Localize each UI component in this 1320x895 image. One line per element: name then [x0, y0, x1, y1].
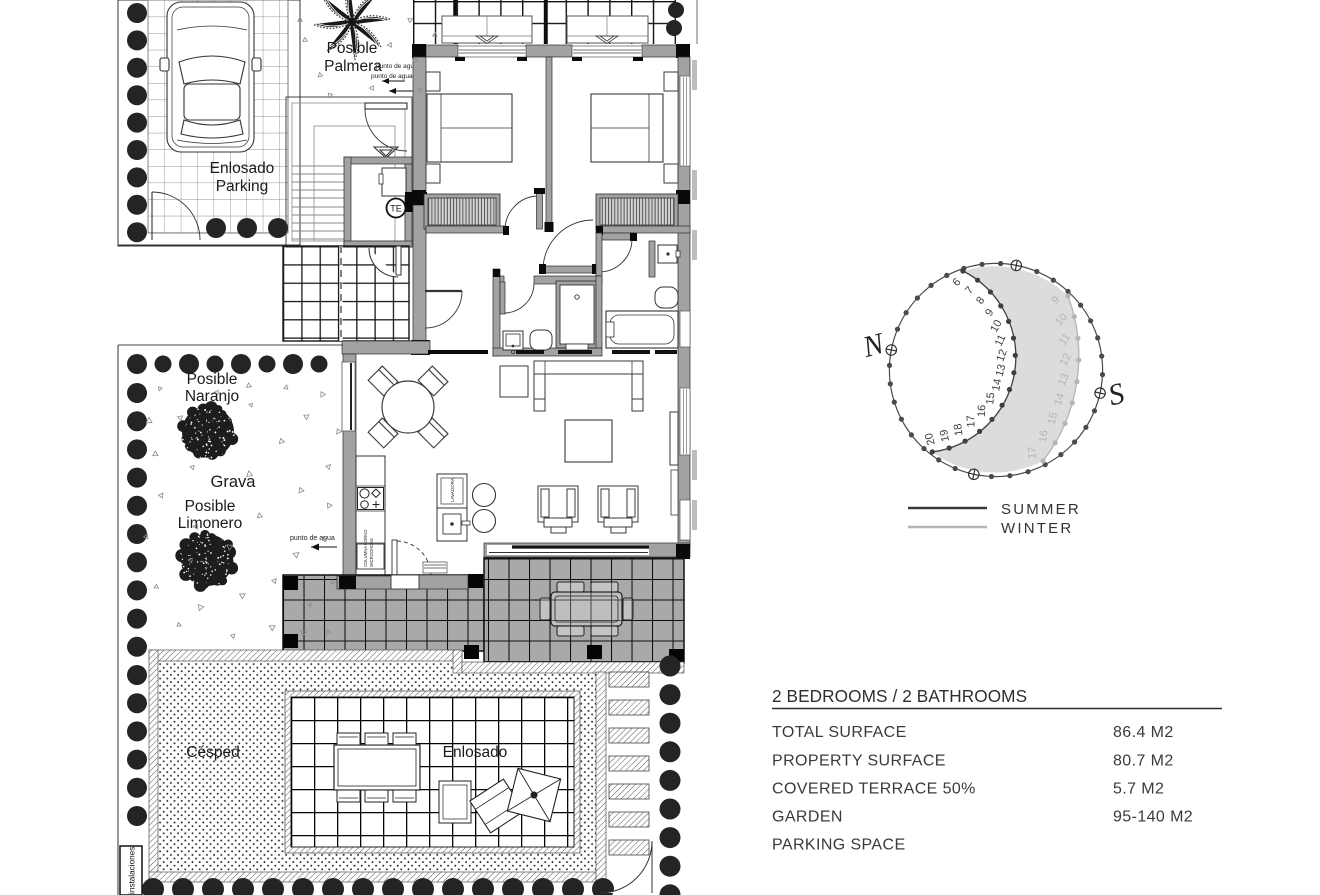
svg-text:14: 14: [990, 378, 1004, 392]
svg-text:SUMMER: SUMMER: [1001, 501, 1081, 518]
svg-text:Posible: Posible: [327, 40, 378, 57]
svg-text:16: 16: [1037, 430, 1050, 443]
svg-text:Posible: Posible: [185, 498, 236, 515]
svg-text:Parking: Parking: [216, 178, 269, 195]
svg-text:17: 17: [1027, 447, 1039, 459]
svg-text:Enlosado: Enlosado: [210, 160, 275, 177]
svg-text:17: 17: [965, 415, 977, 428]
svg-text:5.7 M2: 5.7 M2: [1113, 781, 1164, 798]
svg-text:punto de agua: punto de agua: [290, 535, 335, 542]
svg-text:punto de agua: punto de agua: [376, 63, 418, 70]
svg-text:86.4 M2: 86.4 M2: [1113, 724, 1174, 741]
svg-text:GARDEN: GARDEN: [772, 809, 843, 826]
svg-text:Posible: Posible: [187, 371, 238, 388]
svg-text:95-140 M2: 95-140 M2: [1113, 809, 1193, 826]
svg-text:19: 19: [938, 428, 952, 442]
svg-text:TOTAL SURFACE: TOTAL SURFACE: [772, 724, 907, 741]
svg-text:LAVADORA: LAVADORA: [450, 478, 455, 502]
svg-text:Césped: Césped: [186, 744, 239, 761]
svg-text:COLUMNA HORNO: COLUMNA HORNO: [363, 529, 368, 567]
svg-text:PROPERTY SURFACE: PROPERTY SURFACE: [772, 753, 946, 770]
svg-text:2 BEDROOMS / 2 BATHROOMS: 2 BEDROOMS / 2 BATHROOMS: [772, 686, 1027, 706]
svg-text:punto de agua: punto de agua: [371, 73, 413, 80]
svg-text:18: 18: [952, 423, 965, 437]
svg-text:WINTER: WINTER: [1001, 520, 1073, 537]
svg-text:Limonero: Limonero: [178, 515, 243, 532]
svg-text:instalaciones: instalaciones: [128, 847, 137, 894]
svg-text:15: 15: [984, 392, 997, 405]
svg-text:PARKING SPACE: PARKING SPACE: [772, 837, 906, 854]
svg-text:MICROONDAS: MICROONDAS: [369, 538, 374, 567]
svg-text:80.7 M2: 80.7 M2: [1113, 753, 1174, 770]
svg-text:TE: TE: [390, 204, 402, 214]
svg-text:Enlosado: Enlosado: [443, 744, 508, 761]
svg-text:15: 15: [1046, 411, 1060, 425]
svg-text:16: 16: [976, 405, 988, 418]
svg-text:COVERED TERRACE 50%: COVERED TERRACE 50%: [772, 781, 976, 798]
